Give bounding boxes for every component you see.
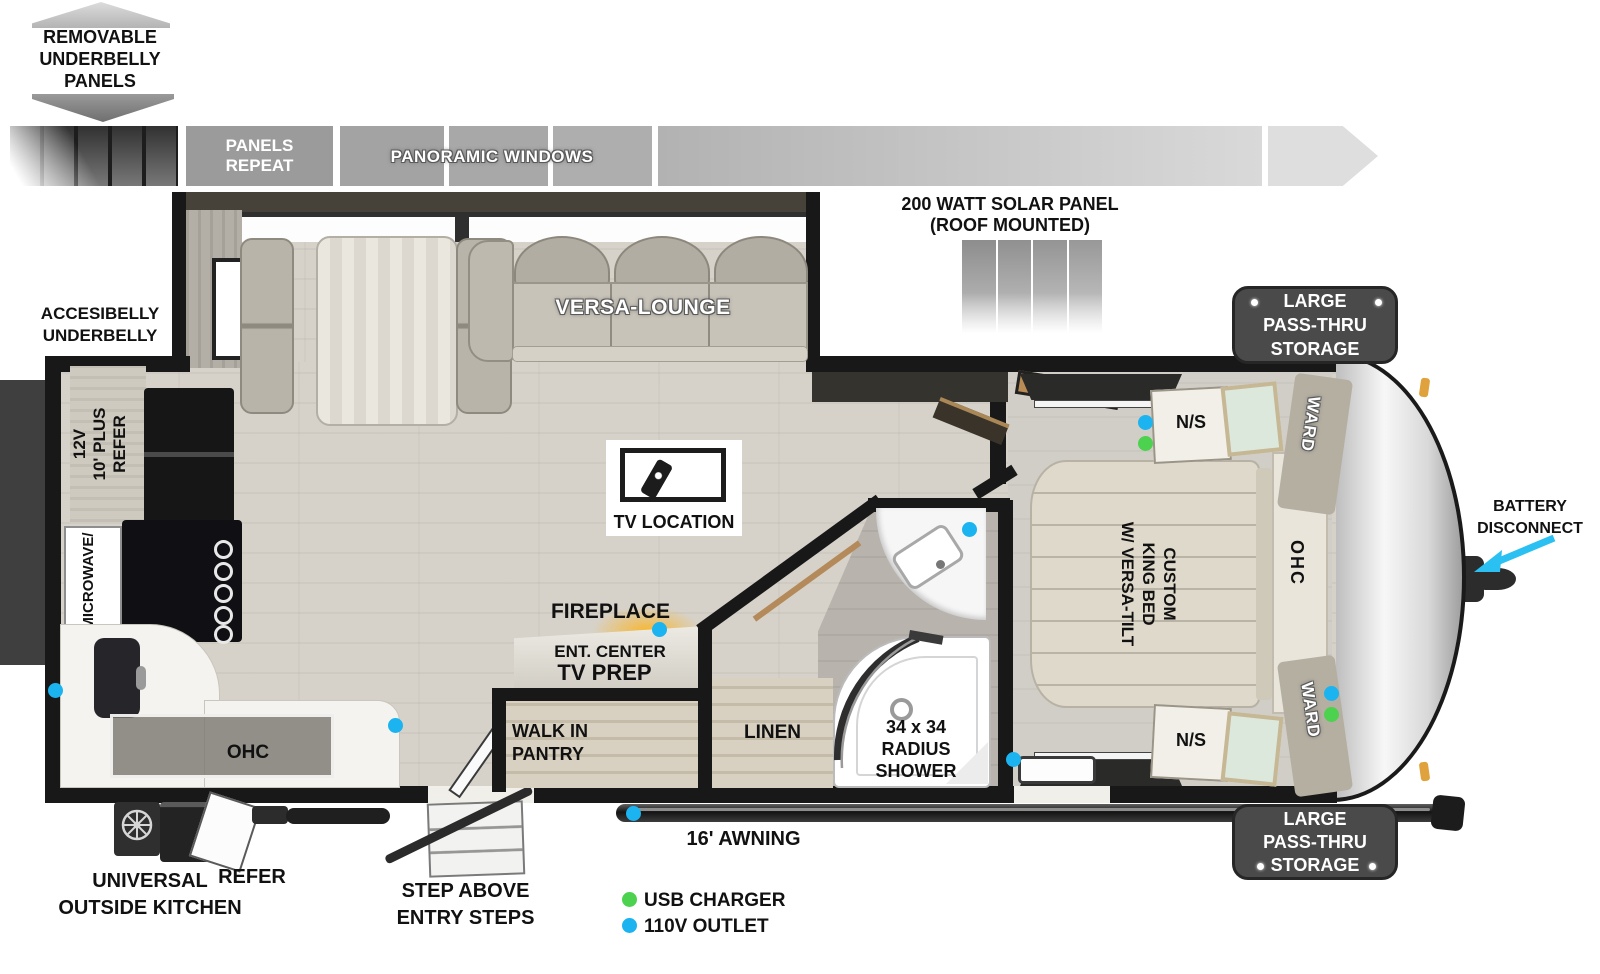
- bedroom-ohc-label: OHC: [1286, 540, 1307, 586]
- burner-icon: [214, 606, 233, 625]
- panoramic-windows-label: PANORAMIC WINDOWS: [352, 147, 632, 167]
- outside-refer-handle: [252, 806, 288, 824]
- outlet-110v-dot: [652, 622, 667, 637]
- outside-kitchen-rail: [286, 808, 390, 824]
- clearance-light-icon: [1419, 761, 1431, 781]
- fan-icon: [120, 808, 154, 842]
- versa-lounge-label: VERSA-LOUNGE: [478, 296, 808, 321]
- tv-prep-label: TV PREP: [522, 660, 687, 686]
- tv-location-label: TV LOCATION: [602, 512, 746, 533]
- kitchen-ohc-label: OHC: [188, 742, 308, 764]
- bedroom-door-mat: [1018, 756, 1096, 784]
- front-cap: [1328, 352, 1466, 802]
- king-bed-label: CUSTOM KING BED W/ VERSA-TILT: [1112, 504, 1180, 664]
- shower-label: 34 x 34 RADIUS SHOWER: [846, 716, 986, 782]
- legend-usb-label: USB CHARGER: [644, 890, 844, 912]
- floorplan-diagram: REMOVABLE UNDERBELLY PANELS PANELS REPEA…: [0, 0, 1600, 974]
- rear-bumper: [0, 380, 45, 665]
- outlet-110v-dot: [388, 718, 403, 733]
- awning-end-fitting: [1430, 794, 1465, 831]
- panels-repeat-box: PANELS REPEAT: [186, 126, 333, 186]
- dinette-bench: [240, 238, 294, 414]
- burner-icon: [214, 584, 233, 603]
- bedroom-wall-lower: [998, 500, 1013, 792]
- bedroom-window-top-sill: [1034, 400, 1170, 408]
- panel-fade: [10, 126, 178, 186]
- hallway-cabinet: [812, 372, 1008, 402]
- outlet-110v-dot: [1138, 415, 1153, 430]
- legend-usb-dot: [622, 892, 637, 907]
- refer-label: 12V 10' PLUS REFER: [70, 366, 146, 522]
- awning-label: 16' AWNING: [656, 828, 831, 852]
- battery-arrow-icon: [1466, 530, 1562, 578]
- arrow-down-icon: [32, 94, 174, 122]
- bedroom-entry-opening: [1014, 786, 1110, 803]
- removable-underbelly-label: REMOVABLE UNDERBELLY PANELS: [5, 26, 195, 92]
- kitchen-sink: [94, 638, 140, 718]
- microwave-label: MICROWAVE/: [80, 526, 106, 636]
- outlet-110v-dot: [48, 683, 63, 698]
- dinette-table: [316, 236, 458, 426]
- pantry-right-wall: [698, 628, 712, 792]
- legend-outlet-dot: [622, 918, 637, 933]
- pantry-label: WALK IN PANTRY: [500, 720, 637, 766]
- headboard: [1256, 468, 1272, 700]
- accesibelly-underbelly-label: ACCESIBELLY UNDERBELLY: [15, 303, 185, 347]
- outlet-110v-dot: [1006, 752, 1021, 767]
- solar-panel-label: 200 WATT SOLAR PANEL (ROOF MOUNTED): [840, 194, 1180, 236]
- legend-outlet-label: 110V OUTLET: [644, 916, 844, 938]
- burner-icon: [214, 540, 233, 559]
- sofa-front-edge: [512, 346, 808, 362]
- nightstand-bottom-label: N/S: [1152, 730, 1230, 751]
- slideout-right-wall: [806, 192, 820, 372]
- banner-segment: [658, 126, 1262, 186]
- arrow-up-icon: [32, 2, 170, 28]
- pantry-top-wall: [492, 688, 712, 701]
- clearance-light-icon: [1419, 377, 1431, 397]
- left-wall: [45, 356, 61, 803]
- usb-charger-dot: [1324, 707, 1339, 722]
- outlet-110v-dot: [962, 522, 977, 537]
- fridge-divider: [144, 452, 234, 457]
- pass-thru-storage-bottom: LARGE PASS-THRU STORAGE: [1232, 804, 1398, 880]
- faucet-icon: [136, 666, 146, 690]
- solar-panel-icon: [962, 240, 1102, 336]
- step-above-label: STEP ABOVE ENTRY STEPS: [378, 878, 553, 932]
- corner-window-top: [1220, 381, 1283, 456]
- corner-window-bottom: [1220, 711, 1283, 786]
- usb-charger-dot: [1138, 436, 1153, 451]
- banner-arrow-tip: [1268, 126, 1378, 186]
- outlet-110v-dot: [626, 806, 641, 821]
- tv-icon: [620, 448, 726, 502]
- nightstand-top-label: N/S: [1152, 412, 1230, 433]
- burner-icon: [214, 562, 233, 581]
- pass-thru-storage-top: LARGE PASS-THRU STORAGE: [1232, 286, 1398, 364]
- slideout-top-wall: [172, 192, 820, 212]
- fireplace-label: FIREPLACE: [528, 600, 693, 625]
- fridge: [144, 388, 234, 530]
- linen-label: LINEN: [712, 722, 833, 744]
- sink-faucet-icon: [936, 560, 945, 569]
- burner-icon: [214, 625, 233, 644]
- slideout-left-wall: [172, 192, 186, 372]
- outlet-110v-dot: [1324, 686, 1339, 701]
- underbelly-panels-strip: [10, 126, 178, 186]
- outside-refer-label: REFER: [212, 866, 292, 890]
